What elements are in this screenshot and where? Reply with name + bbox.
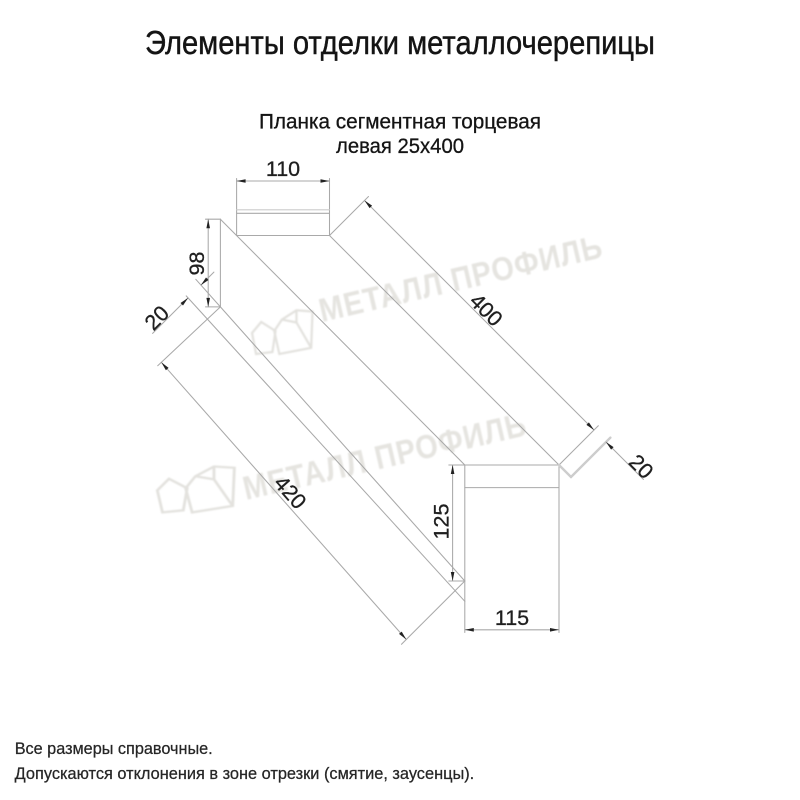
- svg-text:400: 400: [465, 289, 507, 331]
- svg-text:20: 20: [140, 301, 174, 335]
- svg-text:Планка сегментная торцевая: Планка сегментная торцевая: [259, 111, 541, 134]
- svg-text:Элементы отделки металлочерепи: Элементы отделки металлочерепицы: [145, 24, 655, 61]
- svg-text:115: 115: [495, 606, 529, 630]
- svg-text:Допускаются отклонения в зоне: Допускаются отклонения в зоне отрезки (с…: [15, 765, 475, 783]
- svg-text:98: 98: [185, 252, 209, 276]
- svg-text:110: 110: [266, 157, 300, 181]
- svg-text:МЕТАЛЛ ПРОФИЛЬ: МЕТАЛЛ ПРОФИЛЬ: [315, 228, 606, 329]
- svg-text:левая 25х400: левая 25х400: [336, 135, 464, 158]
- svg-text:Все размеры справочные.: Все размеры справочные.: [15, 740, 213, 758]
- svg-text:125: 125: [430, 504, 454, 540]
- svg-text:20: 20: [624, 450, 658, 484]
